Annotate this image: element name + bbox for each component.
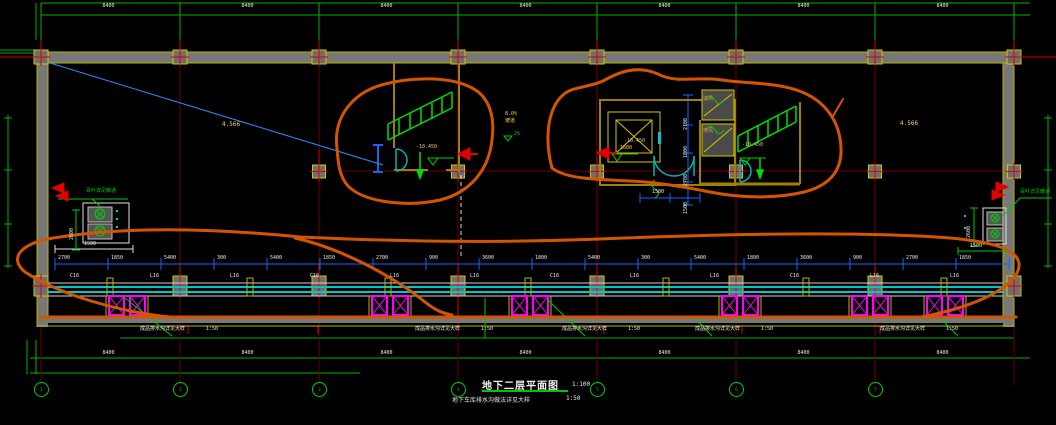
top-dim-label: 8400 [659,4,671,10]
beam-label: L16 [390,274,399,280]
beam-label: L16 [150,274,159,280]
top-dim-label: 8400 [937,4,949,10]
vent-shaft-label-supply: 进风 [703,97,713,103]
drain-note-scale: 1:50 [481,327,493,333]
axis-lines-dim [41,40,1014,385]
chain-dim-label: 3600 [800,256,812,262]
chain-dim-label: 5400 [694,256,706,262]
drain-note: 成品排水沟详见大样 [562,327,607,333]
chain-dim-label: 5400 [164,256,176,262]
bottom-dim-label: 8400 [659,351,671,357]
markup-cloud-core [548,70,841,197]
core-vert-dim-label: 1500 [684,202,690,214]
ramp-label: 坡道 [505,119,515,125]
door-dim-label: 1500 [652,190,664,196]
markup-cloud-left-stair [336,79,492,203]
beam-label: L16 [710,274,719,280]
top-dim-label: 8400 [381,4,393,10]
beam-label: L16 [630,274,639,280]
equipment-width-dim-left: 1500 [84,242,96,248]
drain-note: 成品排水沟详见大样 [140,327,185,333]
ramp-grade-label: 8.0% [505,112,517,118]
drawing-subtitle-scale: 1:50 [566,395,580,402]
chain-dim-label: 1850 [111,256,123,262]
beam-label: L16 [870,274,879,280]
drawing-scale: 1:100 [572,381,590,388]
vent-leader-note-right: 百叶详见暖通 [1020,190,1050,196]
drain-note-scale: 1:50 [628,327,640,333]
drain-note-scale: 1:50 [761,327,773,333]
grid-bubble: 7 [868,382,883,397]
top-dim-label: 8400 [242,4,254,10]
bottom-dim-label: 8400 [103,351,115,357]
chain-dim-label: 5400 [270,256,282,262]
drain-note: 成品排水沟详见大样 [695,327,740,333]
beam-label: C16 [790,274,799,280]
equipment-height-dim-right: 2600 [967,226,973,238]
drain-note-scale: 1:50 [206,327,218,333]
bottom-dim-label: 8400 [381,351,393,357]
cad-drawing-viewport[interactable]: 地下二层平面图 1:100 地下车库排水沟做法详见大样 1:50 4.566 4… [0,0,1056,425]
drawing-subtitle: 地下车库排水沟做法详见大样 [452,395,530,404]
grid-bubble: 3 [312,382,327,397]
top-dim-label: 8400 [103,4,115,10]
chain-dim-label: 900 [429,256,438,262]
chain-dim-label: 2700 [906,256,918,262]
drain-note: 成品排水沟详见大样 [880,327,925,333]
area-label-right: 4.566 [900,121,918,128]
beam-label: L16 [950,274,959,280]
level-value-right: -10.450 [742,143,763,149]
grid-bubble: 2 [173,382,188,397]
exit-arrows [52,147,1008,201]
drain-note-scale: 1:50 [946,327,958,333]
bottom-dim-label: 8400 [520,351,532,357]
area-label-left: 4.566 [222,122,240,129]
equipment-width-dim-right: 1500 [970,244,982,250]
top-dim-label: 8400 [520,4,532,10]
title-underline [482,390,568,392]
beam-label: C16 [550,274,559,280]
chain-dim-label: 3600 [482,256,494,262]
drain-note: 成品排水沟详见大样 [415,327,460,333]
beam-label: L16 [230,274,239,280]
grid-bubble: 4 [451,382,466,397]
reference-diagonal [50,63,383,165]
stair-left [388,92,452,178]
columns [32,48,1023,298]
bottom-dim-label: 8400 [242,351,254,357]
bottom-dim-label: 8400 [798,351,810,357]
chain-dim-label: 1850 [959,256,971,262]
equipment-pads-magenta [106,296,966,316]
grid-bubble: 1 [34,382,49,397]
core-vert-dim-label: 2100 [684,118,690,130]
grid-bubble: 6 [729,382,744,397]
chain-dim-label: 2700 [58,256,70,262]
top-dim-label: 8400 [798,4,810,10]
vent-leader-note-left: 百叶详见暖通 [86,189,116,195]
core-vert-dim-label: 1800 [684,146,690,158]
chain-dim-label: 1800 [747,256,759,262]
ramp-note: 2% [514,132,520,138]
beam-label: C16 [70,274,79,280]
axis-lines-bright [0,40,1056,334]
elevator-label: 1600 [620,146,632,152]
chain-dim-label: 5400 [588,256,600,262]
core-vert-dim-label: 2700 [684,174,690,186]
bottom-dim-label: 8400 [937,351,949,357]
chain-dim-label: 1800 [535,256,547,262]
vent-shaft-label-exhaust: 排风 [703,129,713,135]
grid-bubble: 5 [590,382,605,397]
chain-dim-label: 1850 [323,256,335,262]
dim-chain-blue [55,95,1009,270]
chain-dim-label: 900 [853,256,862,262]
equipment-height-dim-left: 2600 [70,228,76,240]
chain-dim-label: 2700 [376,256,388,262]
level-value-left: -10.450 [416,145,437,151]
level-value-mid: -10.450 [624,139,645,145]
beam-label: C16 [310,274,319,280]
plan-linework [0,0,1056,425]
chain-dim-label: 300 [641,256,650,262]
beam-label: L16 [470,274,479,280]
chain-dim-label: 300 [217,256,226,262]
